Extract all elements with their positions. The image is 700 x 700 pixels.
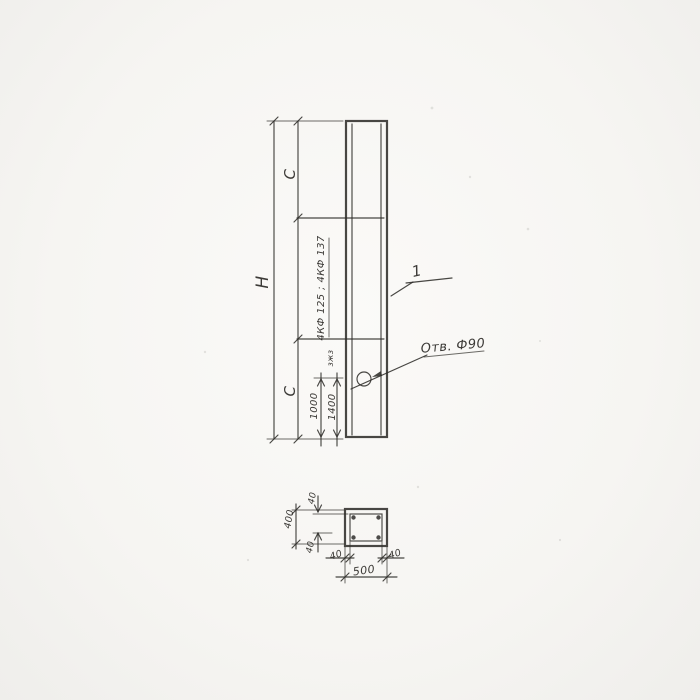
item-number-label: 1 (410, 261, 423, 281)
dim-c-segments: С С (281, 117, 302, 443)
leader-arrowhead (372, 371, 382, 377)
dim-label-400: 400 (282, 509, 296, 530)
dim-label-40-right: 40 (387, 547, 403, 561)
small-note-label: зжз (326, 350, 335, 367)
dim-label-40-top: 40 (307, 491, 319, 505)
hole-callout: Отв. Ф90 (351, 336, 486, 389)
rebar-dot (351, 515, 355, 519)
blueprint-scan: Н С С 4КФ 125 ; 4КФ 137 зжз (0, 0, 700, 700)
column-outline (297, 121, 387, 437)
dim-overall-height: Н (253, 117, 278, 443)
dim-label-c-bottom: С (281, 385, 299, 396)
dim-label-1000: 1000 (309, 392, 320, 419)
drawing-canvas: Н С С 4КФ 125 ; 4КФ 137 зжз (0, 0, 700, 700)
hole-circle (357, 372, 371, 386)
rebar-dot (351, 535, 355, 539)
dim-label-500: 500 (352, 563, 376, 579)
front-view: Н С С 4КФ 125 ; 4КФ 137 зжз (253, 117, 486, 446)
dim-label-h: Н (253, 275, 273, 288)
dim-section-depth: 400 40 40 (282, 491, 348, 554)
series-marks-note: 4КФ 125 ; 4КФ 137 зжз (316, 235, 335, 366)
rebar-dot (376, 515, 380, 519)
dim-section-width: 40 40 500 (326, 542, 404, 583)
dim-label-1400: 1400 (327, 393, 338, 420)
dim-label-40-left: 40 (328, 548, 344, 562)
item-leader-diagonal (391, 282, 413, 296)
dim-label-40-bottom: 40 (305, 540, 317, 554)
item-leader: 1 (391, 261, 452, 296)
section-outline (345, 509, 387, 546)
dim-label-c-top: С (281, 168, 299, 179)
dim-hole-offsets: 1000 1400 (309, 373, 343, 446)
scan-noise (204, 107, 561, 562)
rebar-dot (376, 535, 380, 539)
series-label: 4КФ 125 ; 4КФ 137 (316, 235, 327, 340)
section-view: 400 40 40 40 (282, 491, 404, 583)
